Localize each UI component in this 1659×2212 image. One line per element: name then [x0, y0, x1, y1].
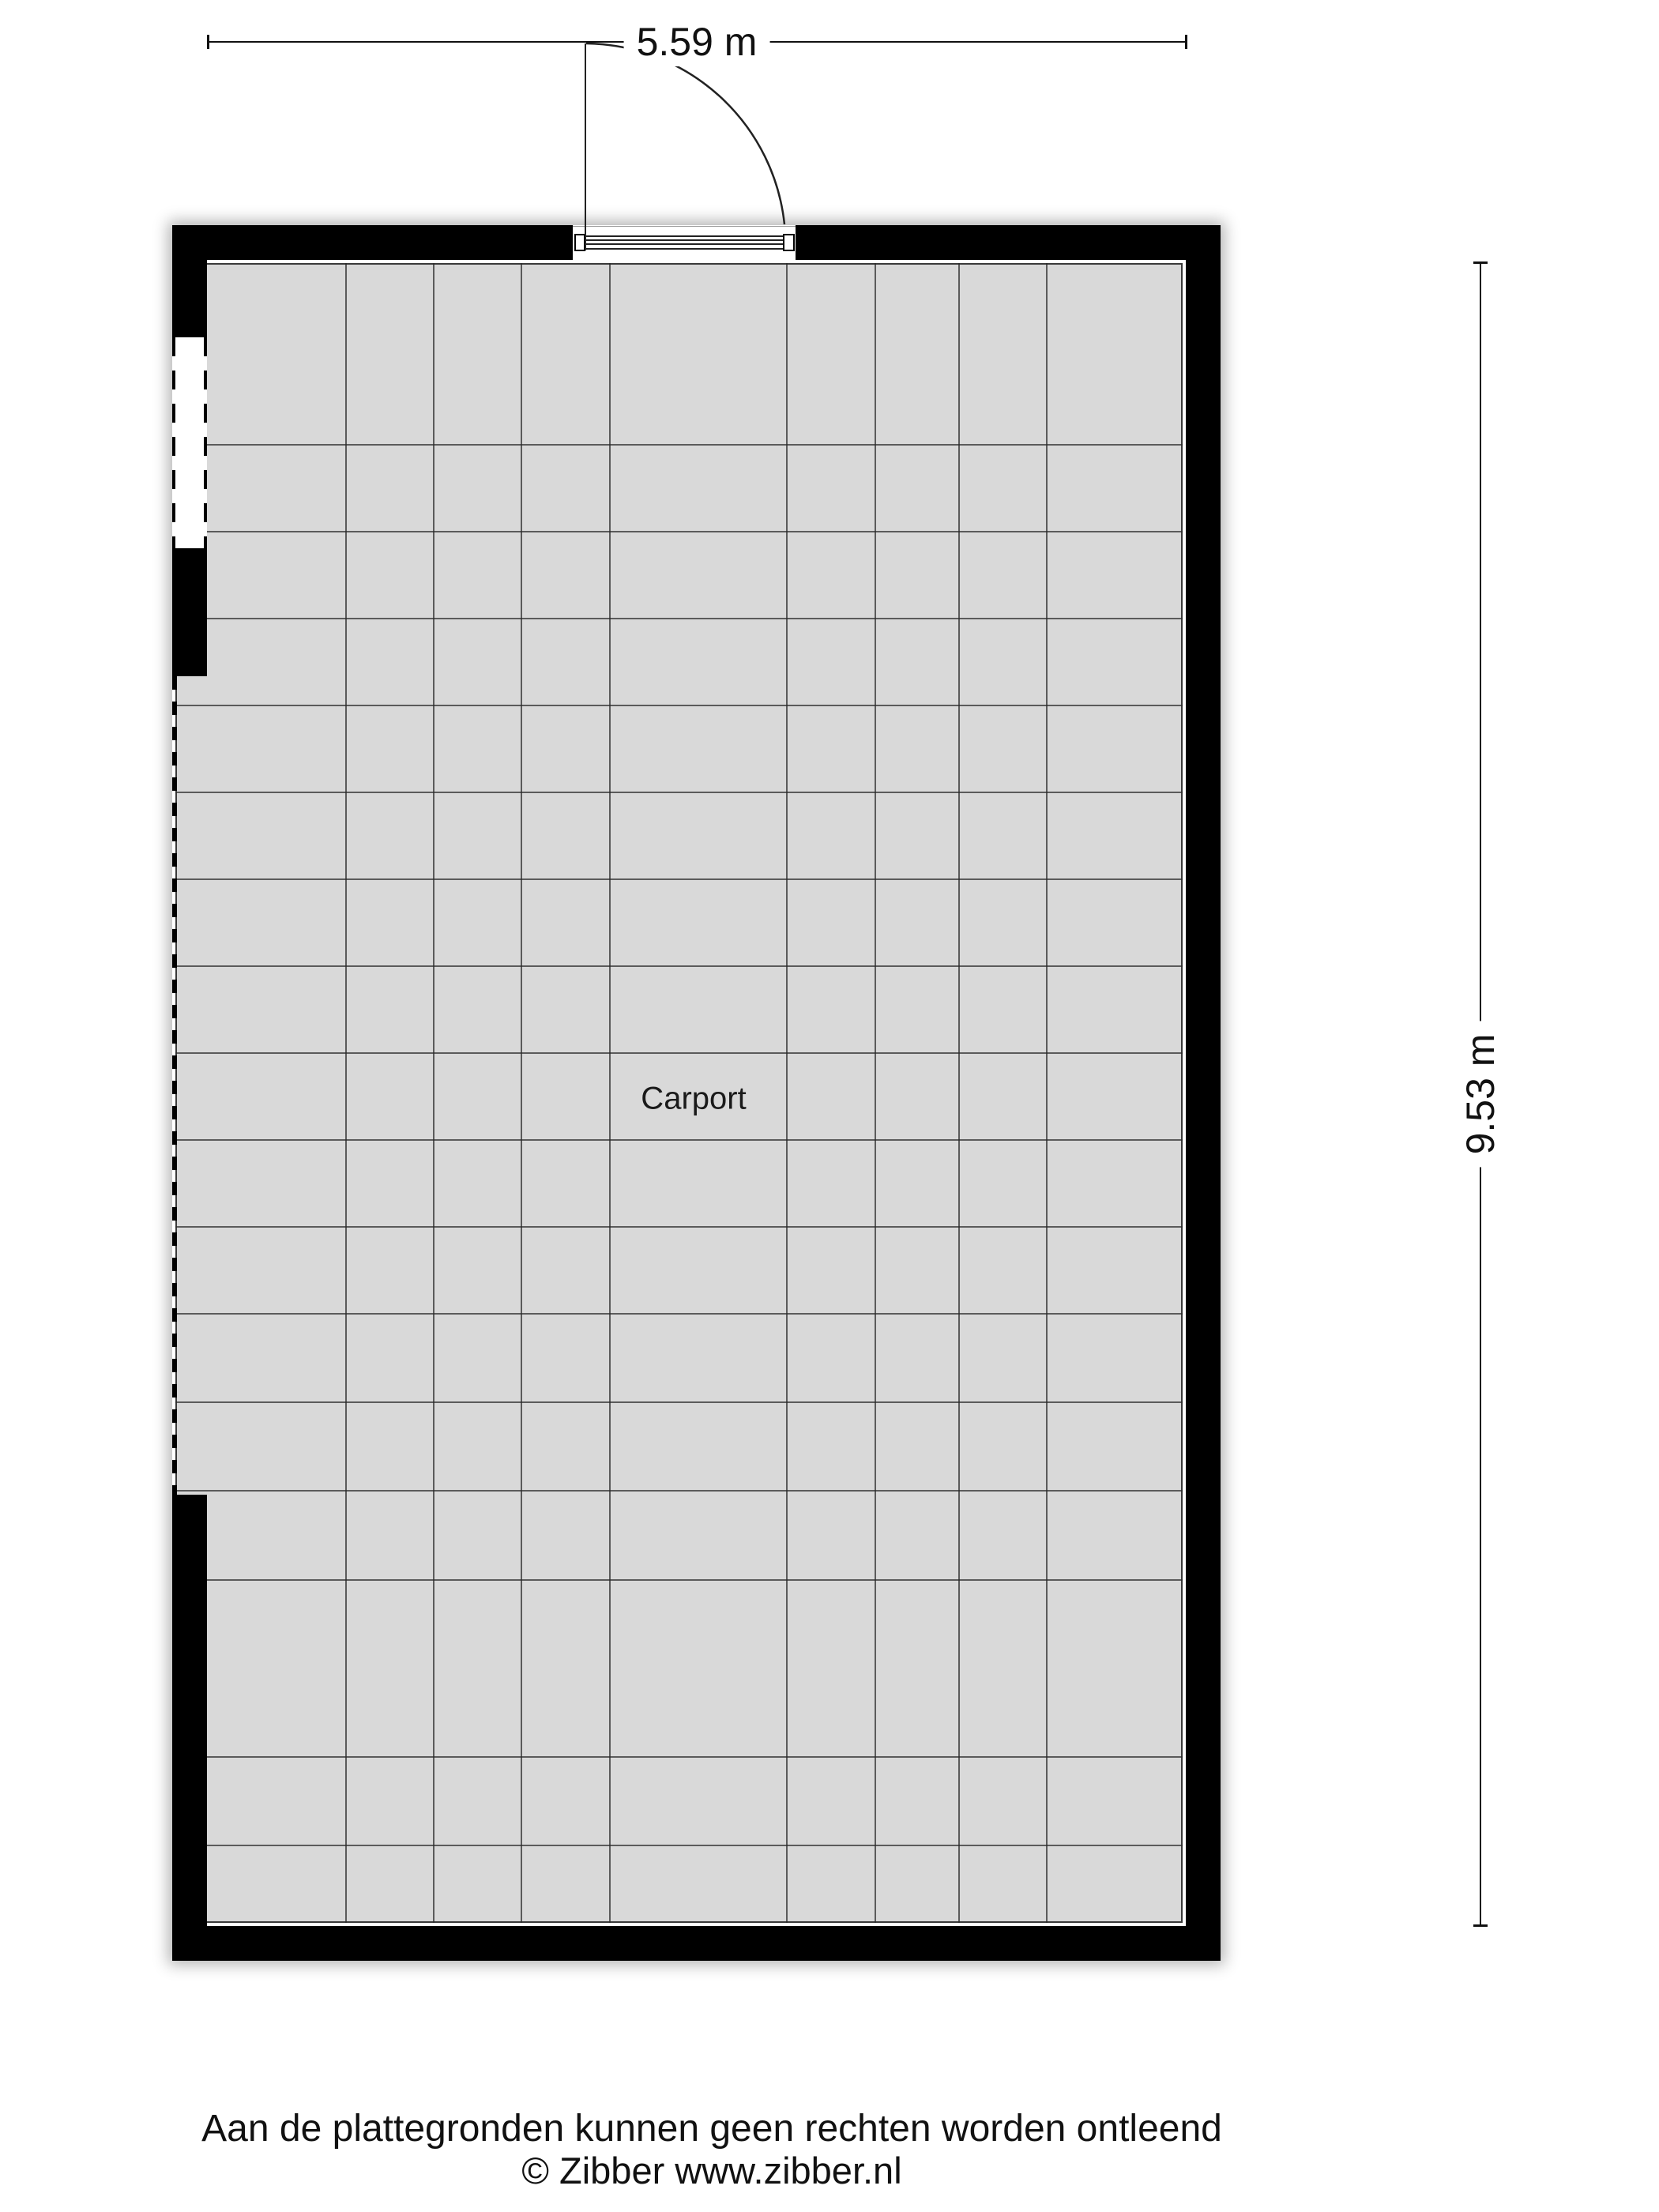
copyright-text: © Zibber www.zibber.nl — [186, 2150, 1238, 2191]
width-dimension-tick — [207, 35, 209, 49]
floor-grid-line-horizontal — [175, 1490, 1183, 1492]
width-dimension-label: 5.59 m — [624, 17, 770, 66]
floor-grid-line-horizontal — [175, 444, 1183, 446]
window-dashed-edge-inner — [204, 337, 207, 548]
floor-grid-line-vertical — [786, 263, 788, 1923]
floor-grid-line-vertical — [433, 263, 434, 1923]
wall-segment-left-lower — [172, 1495, 207, 1961]
floor-grid-line-horizontal — [175, 792, 1183, 793]
door-frame-post — [574, 234, 585, 251]
width-dimension-tick — [1185, 35, 1187, 49]
floor-grid-line-vertical — [875, 263, 876, 1923]
floorplan-drawing — [0, 0, 1659, 2212]
floor-grid-line-horizontal — [175, 705, 1183, 706]
wall-segment-top-right-of-door — [796, 225, 1221, 260]
room-name-label: Carport — [641, 1082, 746, 1117]
footer-disclaimer: Aan de plattegronden kunnen geen rechten… — [186, 2108, 1238, 2191]
disclaimer-text: Aan de plattegronden kunnen geen rechten… — [186, 2108, 1238, 2150]
floor-grid-line-horizontal — [175, 1313, 1183, 1315]
floor-grid-line-horizontal — [175, 878, 1183, 880]
window-dashed-edge-outer — [172, 337, 175, 548]
door-sill-line — [585, 239, 783, 241]
floor-grid-line-vertical — [521, 263, 522, 1923]
floor-grid-line-horizontal — [175, 965, 1183, 967]
door-opening-outer-face-line — [573, 226, 796, 227]
height-dimension-tick — [1473, 1924, 1488, 1927]
door-leaf-line — [585, 43, 586, 250]
wall-segment-right — [1186, 225, 1221, 1961]
floor-grid-line-vertical — [345, 263, 347, 1923]
door-frame-post — [783, 234, 795, 251]
wall-segment-top-left-of-door — [172, 225, 573, 260]
wall-segment-left-mid — [172, 548, 207, 676]
floor-grid-line-horizontal — [175, 531, 1183, 532]
floor-grid-line-horizontal — [175, 1401, 1183, 1403]
height-dimension-tick — [1473, 261, 1488, 264]
door-swing-arc — [586, 43, 784, 224]
floor-grid-line-horizontal — [175, 1845, 1183, 1846]
floor-grid-line-horizontal — [175, 618, 1183, 619]
floor-grid-line-vertical — [958, 263, 960, 1923]
wall-segment-left-upper — [172, 225, 207, 337]
floor-grid-line-horizontal — [175, 1226, 1183, 1228]
window-opening — [172, 337, 207, 548]
floor-grid-line-vertical — [1046, 263, 1048, 1923]
door-sill-line — [585, 248, 783, 250]
floor-grid-line-horizontal — [175, 1052, 1183, 1054]
door-sill-line — [585, 243, 783, 245]
wall-segment-bottom — [172, 1926, 1221, 1961]
door-sill-line — [585, 235, 783, 237]
floor-grid-line-vertical — [609, 263, 611, 1923]
open-edge-dashed-line — [172, 676, 177, 1495]
floor-grid-line-horizontal — [175, 1579, 1183, 1581]
floor-grid-line-horizontal — [175, 1139, 1183, 1141]
floorplan-page: 5.59 m 9.53 m Carport Aan de plattegrond… — [0, 0, 1659, 2212]
floor-grid-line-horizontal — [175, 1756, 1183, 1758]
height-dimension-label: 9.53 m — [1456, 1021, 1505, 1168]
